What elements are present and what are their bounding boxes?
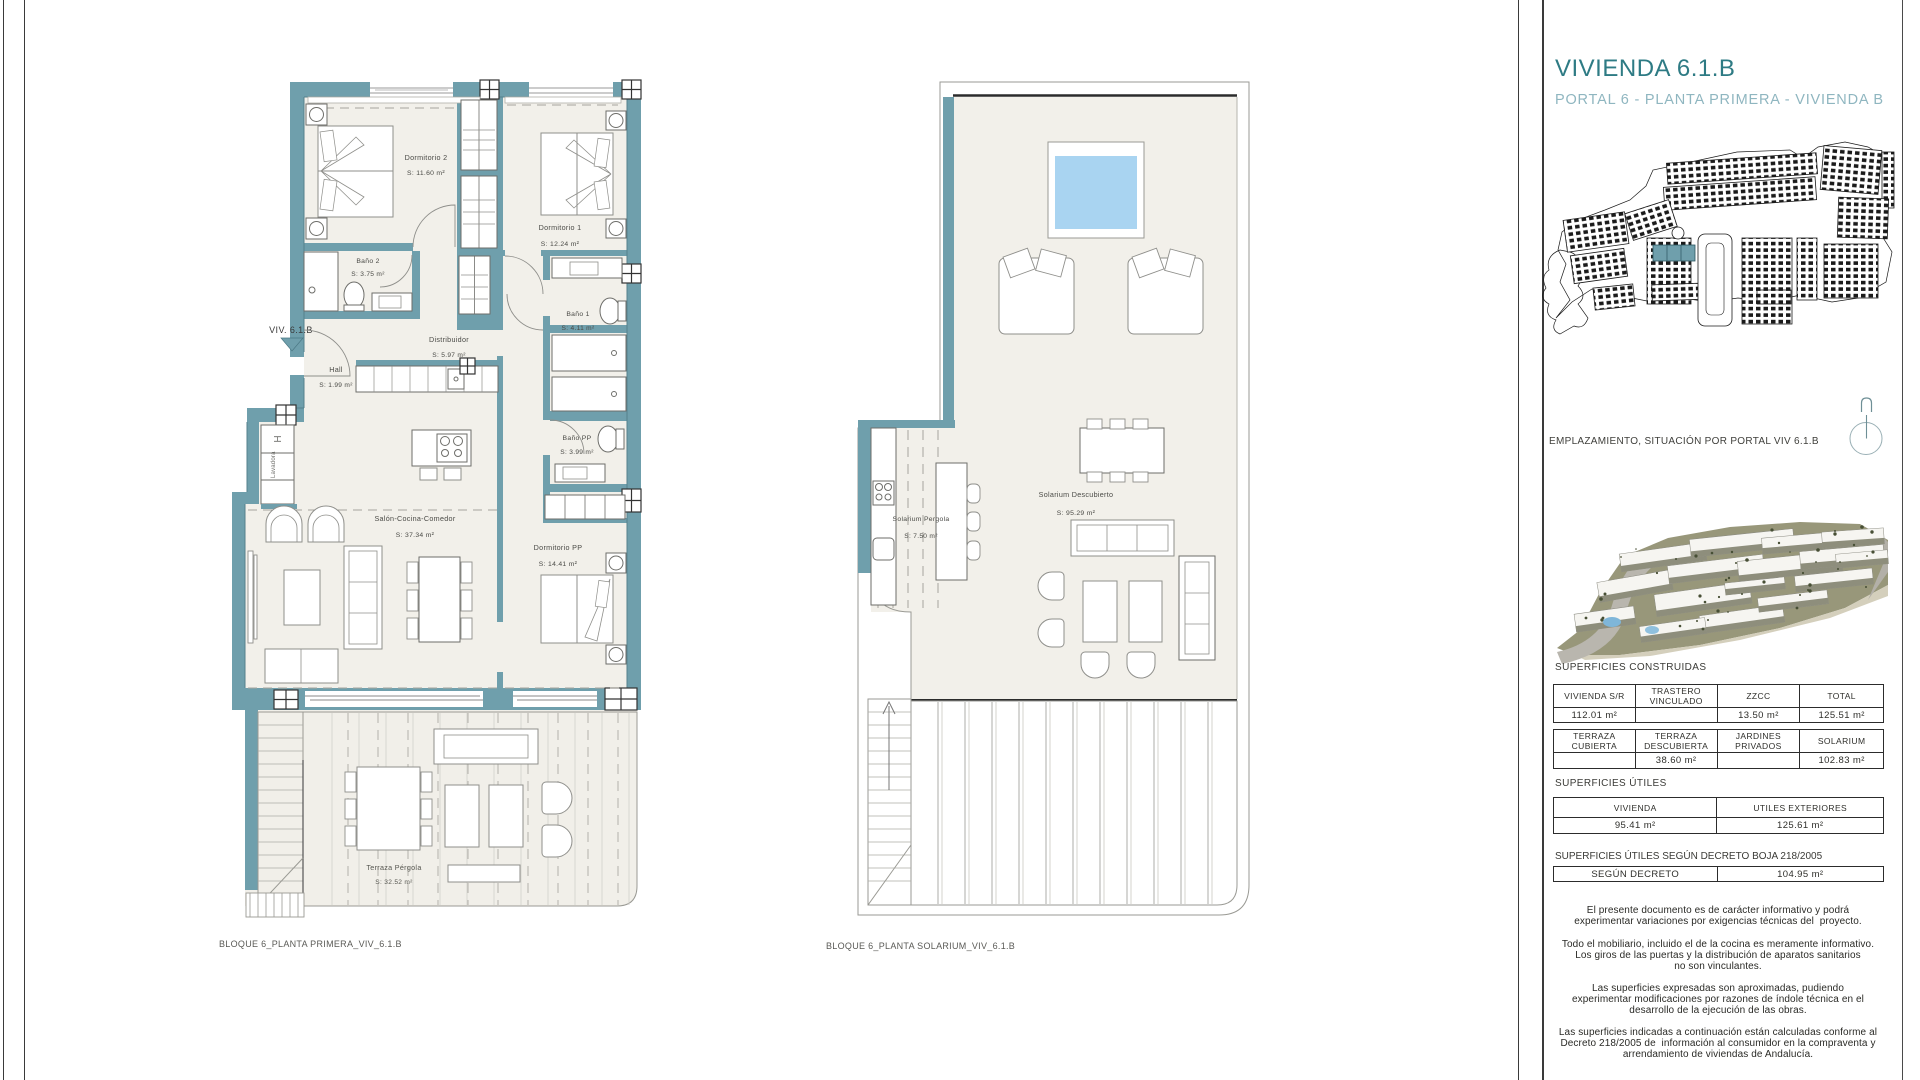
svg-text:BLOQUE 6_PLANTA SOLARIUM_VIV_6: BLOQUE 6_PLANTA SOLARIUM_VIV_6.1.B [826, 941, 1015, 951]
svg-text:Terraza Pérgola: Terraza Pérgola [366, 863, 421, 872]
svg-text:Dormitorio 2: Dormitorio 2 [405, 153, 448, 162]
svg-text:BLOQUE 6_PLANTA PRIMERA_VIV_6.: BLOQUE 6_PLANTA PRIMERA_VIV_6.1.B [219, 939, 402, 949]
svg-text:Dormitorio 1: Dormitorio 1 [539, 223, 582, 232]
svg-text:S: 12.24 m²: S: 12.24 m² [541, 241, 580, 248]
svg-text:Lavadora: Lavadora [271, 451, 277, 478]
svg-text:S: 95.29 m²: S: 95.29 m² [1057, 510, 1096, 517]
svg-text:Solarium Pergola: Solarium Pergola [893, 516, 950, 523]
svg-text:Baño 2: Baño 2 [356, 258, 379, 265]
svg-text:H: H [271, 435, 282, 442]
svg-text:S: 1.99 m²: S: 1.99 m² [319, 382, 353, 389]
svg-text:Baño 1: Baño 1 [566, 311, 589, 318]
svg-text:S: 7.50 m²: S: 7.50 m² [904, 533, 938, 540]
svg-text:Dormitorio PP: Dormitorio PP [534, 543, 583, 552]
svg-text:S: 3.99 m²: S: 3.99 m² [560, 449, 594, 456]
svg-text:Distribuidor: Distribuidor [429, 335, 469, 344]
svg-text:Hall: Hall [329, 365, 343, 374]
svg-text:S: 14.41 m²: S: 14.41 m² [539, 561, 578, 568]
svg-text:S: 3.75 m²: S: 3.75 m² [351, 271, 385, 278]
svg-text:EMPLAZAMIENTO, SITUACIÓN POR P: EMPLAZAMIENTO, SITUACIÓN POR PORTAL VIV … [1549, 434, 1819, 447]
svg-text:S: 32.52 m²: S: 32.52 m² [375, 879, 413, 886]
svg-text:Baño PP: Baño PP [563, 435, 592, 442]
svg-text:S: 11.60 m²: S: 11.60 m² [407, 170, 445, 177]
svg-text:S: 4.11 m²: S: 4.11 m² [562, 325, 595, 332]
svg-text:S: 37.34 m²: S: 37.34 m² [396, 532, 435, 539]
svg-text:Salón-Cocina-Comedor: Salón-Cocina-Comedor [374, 514, 455, 523]
svg-text:Solarium Descubierto: Solarium Descubierto [1039, 490, 1114, 499]
